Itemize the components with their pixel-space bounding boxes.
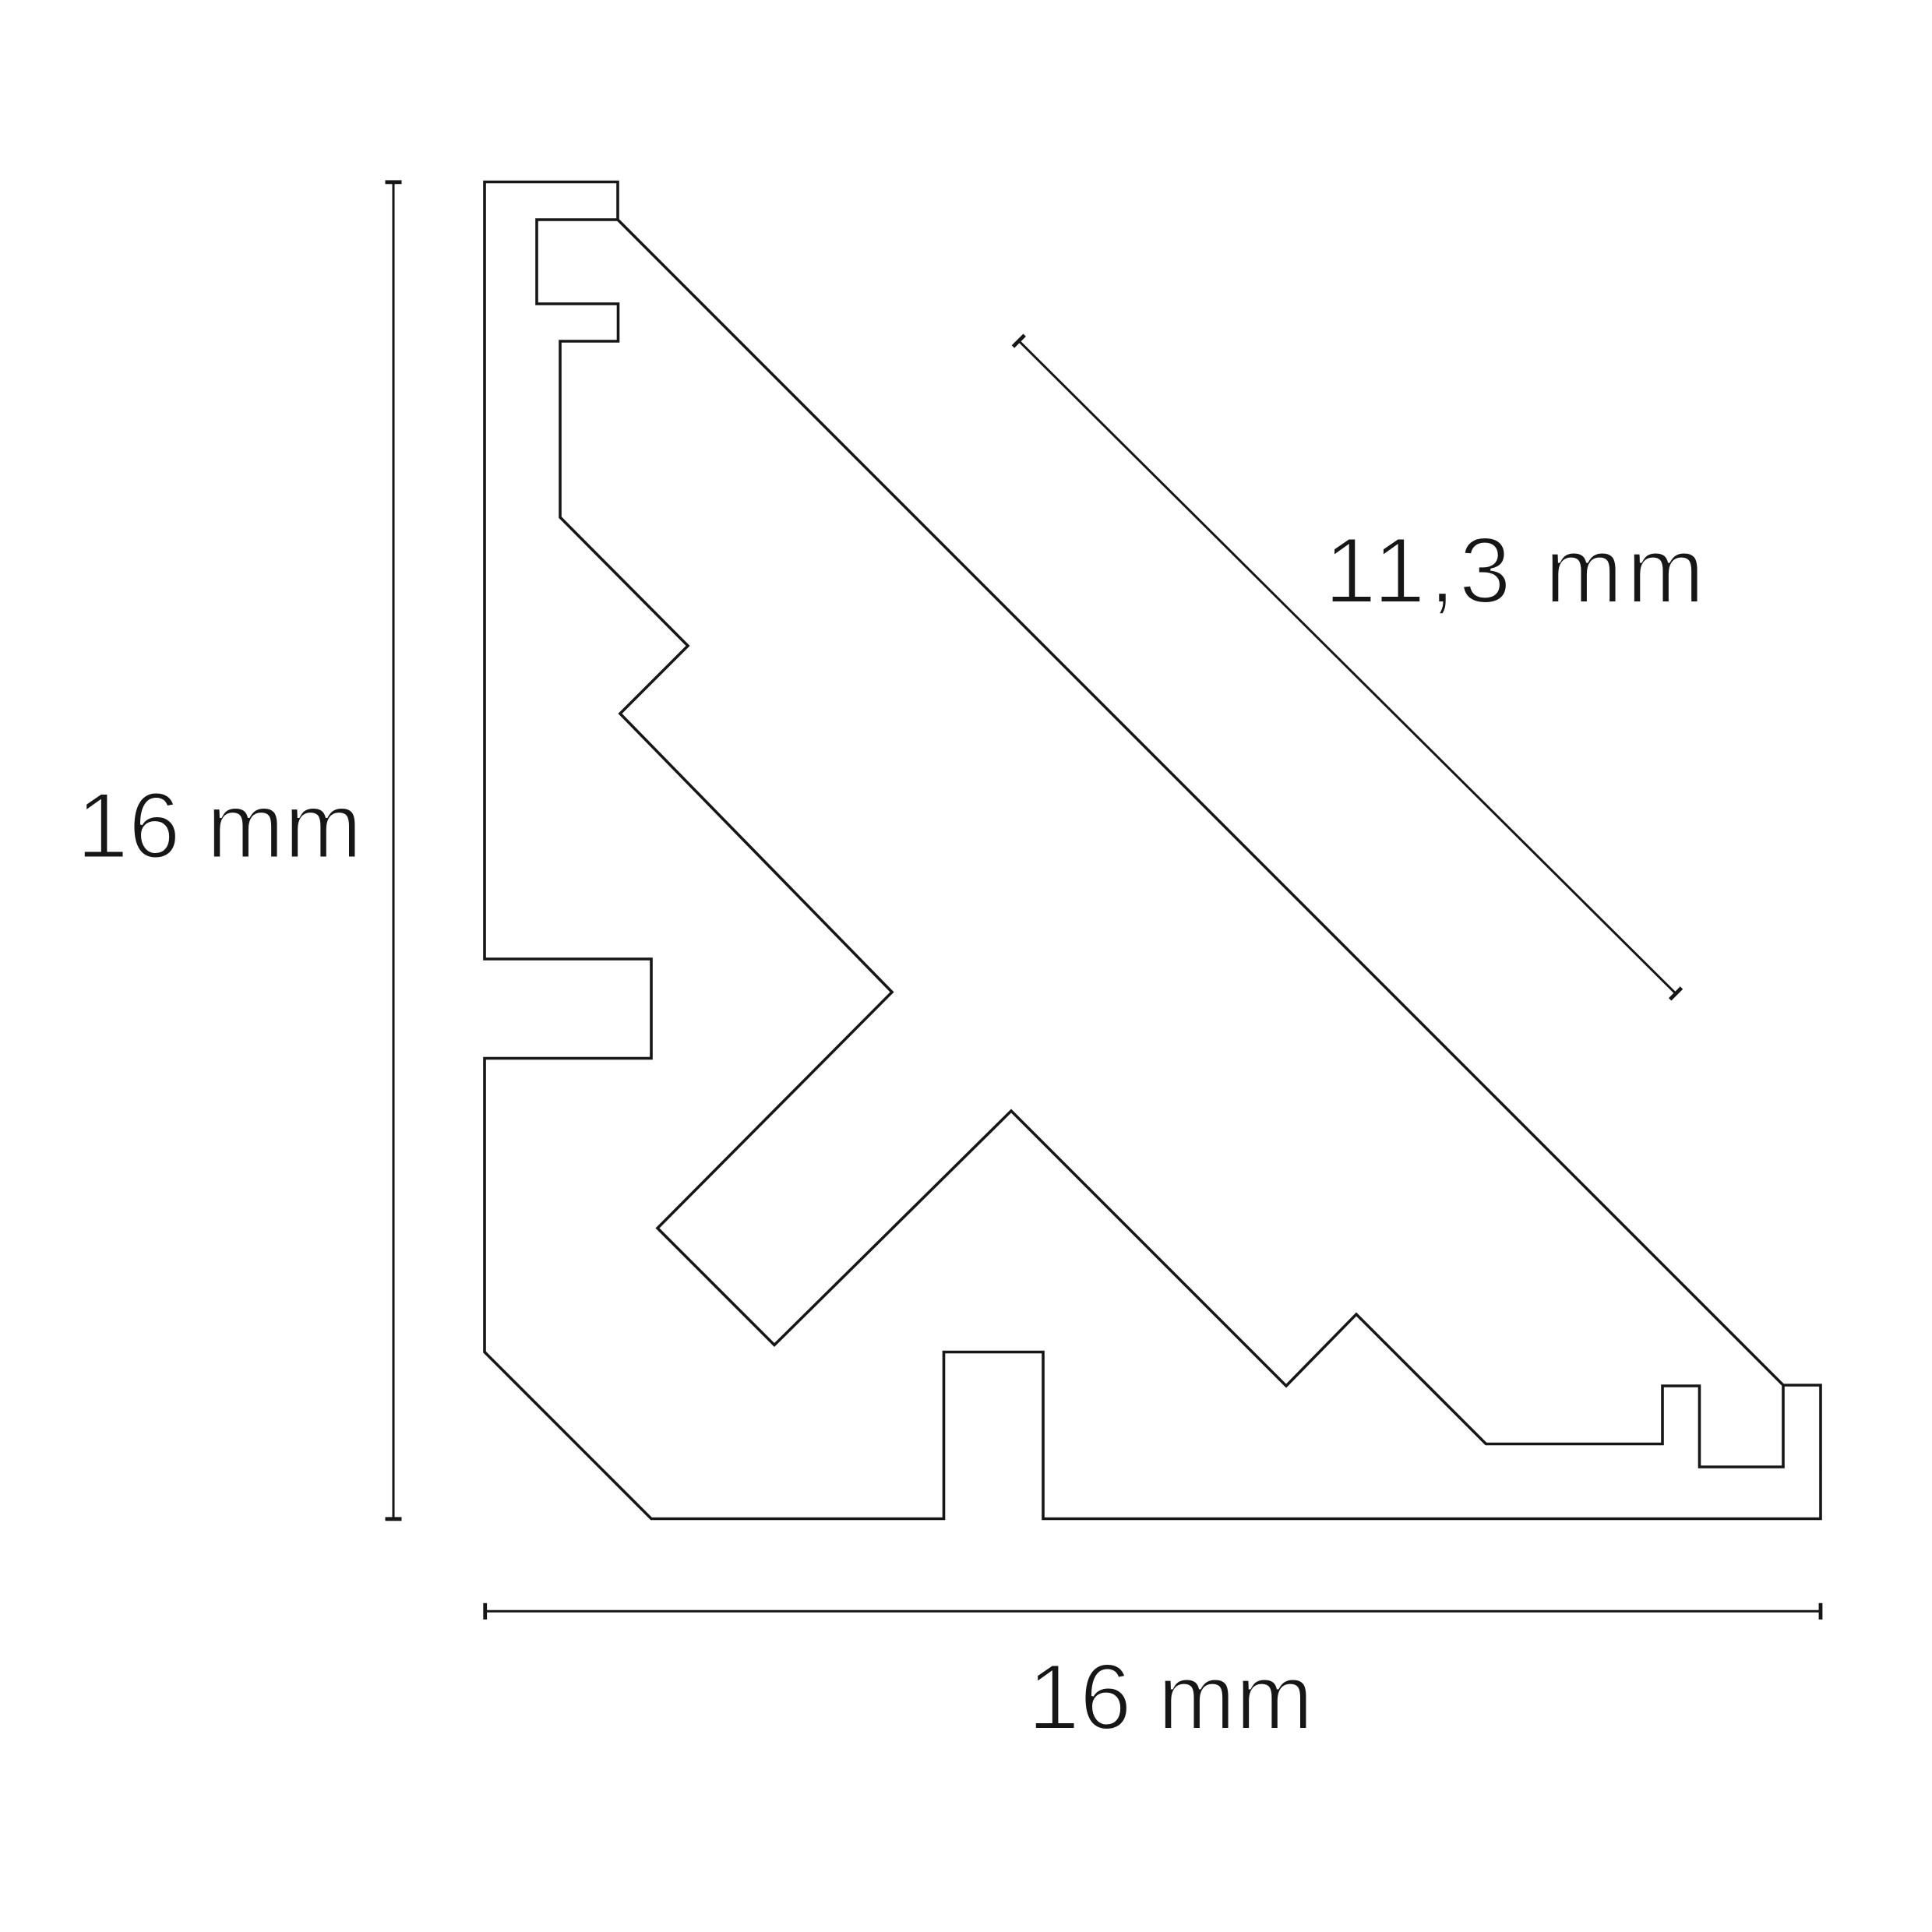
svg-text:16 mm: 16 mm xyxy=(76,774,362,878)
svg-text:11,3 mm: 11,3 mm xyxy=(1324,519,1708,623)
svg-text:16 mm: 16 mm xyxy=(1028,1645,1313,1750)
